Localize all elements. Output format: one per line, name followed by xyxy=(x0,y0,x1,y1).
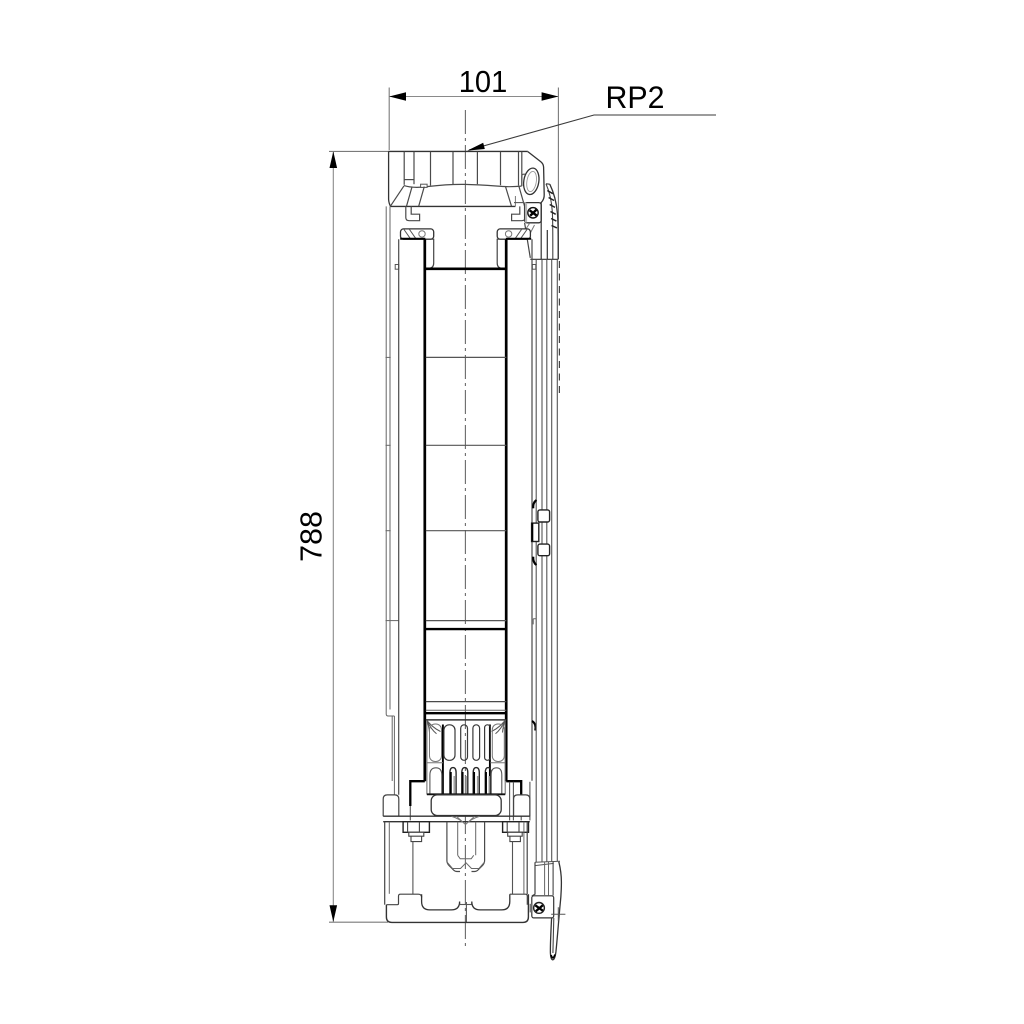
svg-text:101: 101 xyxy=(459,64,508,99)
svg-text:788: 788 xyxy=(294,511,329,562)
svg-text:RP2: RP2 xyxy=(606,79,665,115)
